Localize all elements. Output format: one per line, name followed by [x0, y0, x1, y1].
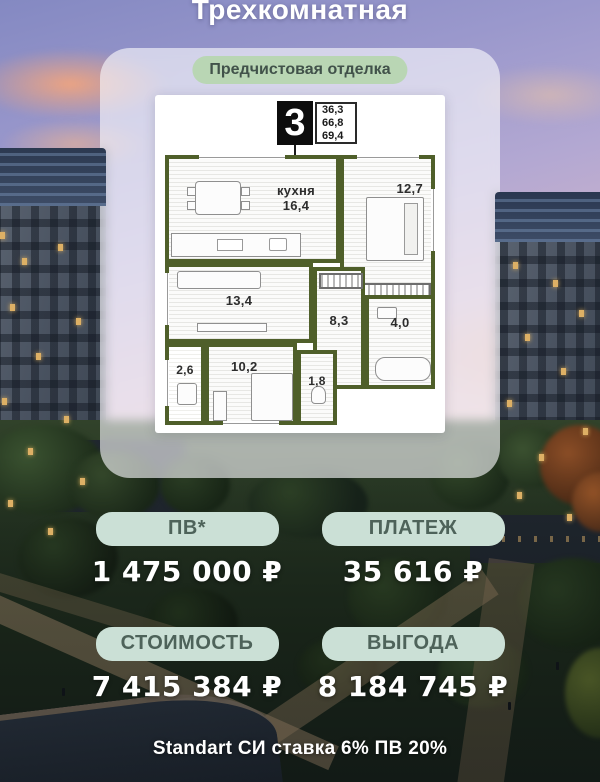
- window: [223, 421, 279, 425]
- chair: [187, 187, 196, 196]
- offer-card: Предчистовая отделка 3 36,3 66,8 69,4: [100, 48, 500, 478]
- chair: [241, 201, 250, 210]
- price-label-pill: ВЫГОДА: [322, 627, 505, 661]
- price-value: 7 415 384 ₽: [92, 670, 283, 703]
- room-label: 13,4: [226, 293, 253, 308]
- promo-screen: Трехкомнатная Предчистовая отделка 3 36,…: [0, 0, 600, 782]
- room-balcony: 2,6: [165, 343, 205, 425]
- dining-table: [195, 181, 241, 215]
- price-label-pill: ПВ*: [96, 512, 279, 546]
- price-value: 1 475 000 ₽: [92, 555, 283, 588]
- room-label: 12,7: [396, 181, 423, 196]
- room-label: 1,8: [308, 374, 326, 389]
- balcony-chair: [177, 383, 197, 405]
- terms-note: Standart СИ ставка 6% ПВ 20%: [0, 738, 600, 760]
- sofa: [177, 271, 261, 289]
- room-kitchen: кухня 16,4: [165, 155, 340, 263]
- price-value: 8 184 745 ₽: [318, 670, 509, 703]
- window: [165, 360, 169, 406]
- chair: [241, 187, 250, 196]
- area-value: 36,3: [322, 104, 355, 117]
- price-item-benefit: ВЫГОДА 8 184 745 ₽: [298, 627, 528, 703]
- area-value: 69,4: [322, 130, 355, 143]
- bathtub: [375, 357, 431, 381]
- chair: [187, 201, 196, 210]
- window: [199, 155, 285, 159]
- page-title: Трехкомнатная: [0, 0, 600, 26]
- closet: [319, 273, 363, 289]
- room-label: кухня 16,4: [265, 183, 327, 213]
- room-bathroom: 4,0: [365, 295, 435, 389]
- room-living: 13,4: [165, 263, 313, 343]
- areas-box: 36,3 66,8 69,4: [315, 102, 357, 144]
- price-item-downpayment: ПВ* 1 475 000 ₽: [72, 512, 302, 588]
- window: [431, 189, 435, 251]
- desk: [213, 391, 227, 421]
- price-value: 35 616 ₽: [343, 555, 483, 588]
- window: [357, 155, 419, 159]
- bed-pillow: [404, 203, 418, 255]
- price-label-pill: ПЛАТЕЖ: [322, 512, 505, 546]
- finish-badge: Предчистовая отделка: [192, 56, 407, 84]
- tower-glass-top: [495, 192, 600, 242]
- room-bedroom2: 10,2: [205, 343, 297, 425]
- kitchen-sink: [269, 238, 287, 251]
- floorplan-card: 3 36,3 66,8 69,4 ку: [155, 95, 445, 433]
- room-wc: 1,8: [297, 350, 337, 425]
- rooms-count-badge: 3: [277, 101, 313, 145]
- tower-glass-top: [0, 148, 106, 206]
- stove: [217, 239, 243, 251]
- price-item-payment: ПЛАТЕЖ 35 616 ₽: [298, 512, 528, 588]
- floorplan-drawing: кухня 16,4 12,7 13,4 8,3: [165, 155, 435, 425]
- bed: [251, 373, 293, 421]
- area-value: 66,8: [322, 117, 355, 130]
- price-item-cost: СТОИМОСТЬ 7 415 384 ₽: [72, 627, 302, 703]
- room-label: 2,6: [176, 363, 194, 378]
- window: [165, 273, 169, 325]
- room-label: 10,2: [231, 359, 258, 374]
- tv-stand: [197, 323, 267, 332]
- room-label: 8,3: [330, 313, 349, 328]
- room-label: 4,0: [391, 315, 410, 330]
- price-label-pill: СТОИМОСТЬ: [96, 627, 279, 661]
